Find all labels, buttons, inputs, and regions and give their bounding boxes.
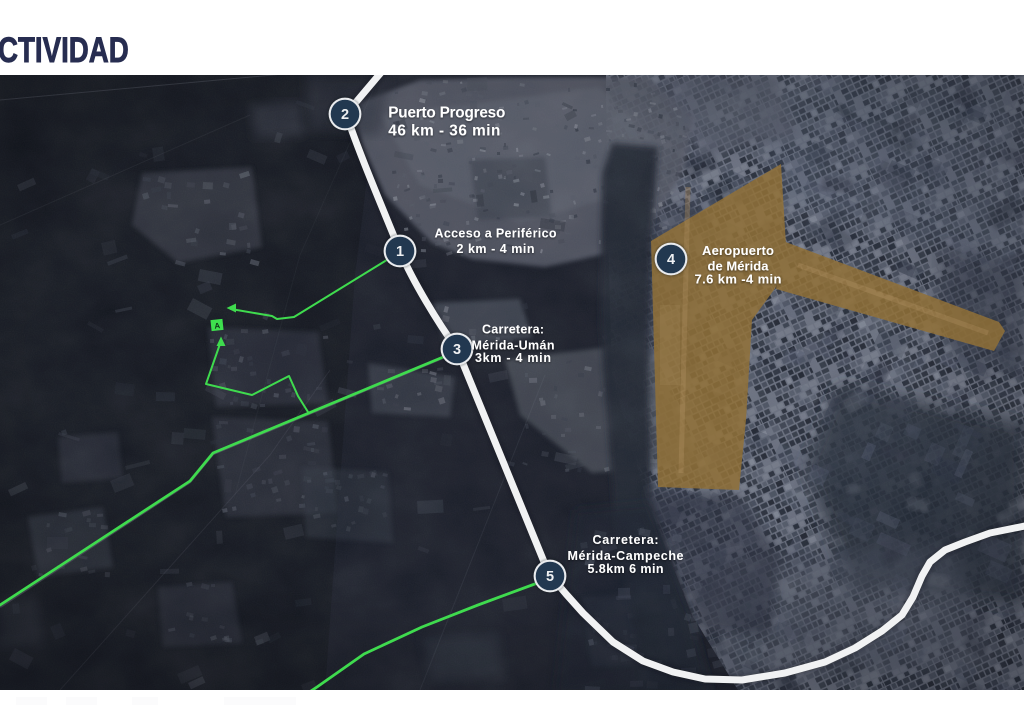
svg-text:7.6 km -4 min: 7.6 km -4 min: [695, 271, 782, 286]
svg-text:1: 1: [396, 244, 404, 260]
svg-text:Carretera:: Carretera:: [593, 533, 659, 547]
svg-text:3km - 4 min: 3km - 4 min: [475, 351, 551, 365]
svg-text:Carretera:: Carretera:: [482, 323, 544, 337]
svg-text:5: 5: [546, 569, 554, 585]
svg-text:Mérida-Campeche: Mérida-Campeche: [568, 549, 684, 563]
svg-text:4: 4: [667, 252, 675, 268]
svg-text:46 km - 36 min: 46 km - 36 min: [388, 123, 500, 140]
svg-text:Acceso a Periférico: Acceso a Periférico: [435, 227, 557, 241]
svg-text:A: A: [214, 321, 221, 331]
svg-text:2: 2: [341, 107, 349, 123]
svg-text:Aeropuerto: Aeropuerto: [702, 243, 774, 258]
svg-text:5.8km 6 min: 5.8km 6 min: [588, 562, 664, 576]
svg-text:3: 3: [453, 342, 461, 358]
svg-text:2 km - 4 min: 2 km - 4 min: [457, 242, 535, 256]
svg-text:Puerto Progreso: Puerto Progreso: [388, 105, 505, 122]
